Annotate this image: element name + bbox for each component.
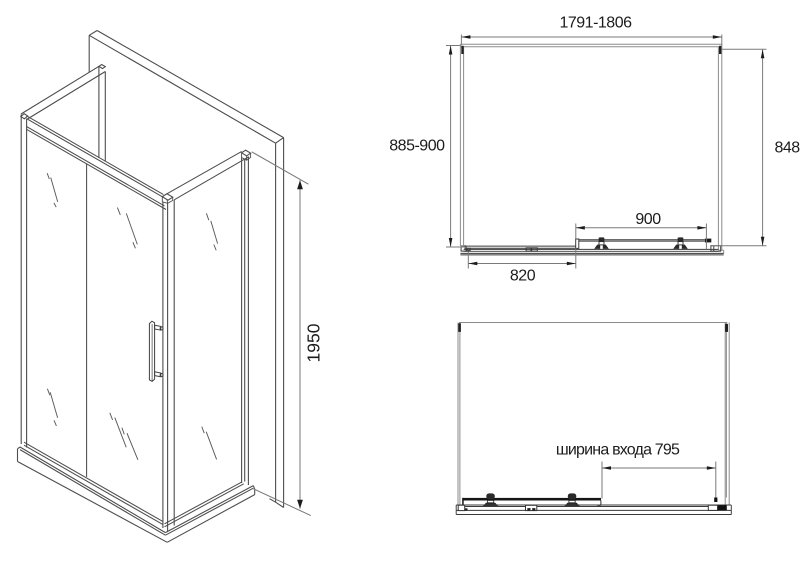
svg-text:900: 900 (635, 211, 661, 228)
svg-text:ширина входа 795: ширина входа 795 (556, 441, 680, 458)
svg-text:820: 820 (510, 268, 536, 285)
svg-text:848: 848 (775, 140, 801, 157)
svg-text:1791-1806: 1791-1806 (559, 15, 632, 32)
svg-text:1950: 1950 (304, 323, 324, 362)
svg-text:885-900: 885-900 (389, 138, 445, 155)
